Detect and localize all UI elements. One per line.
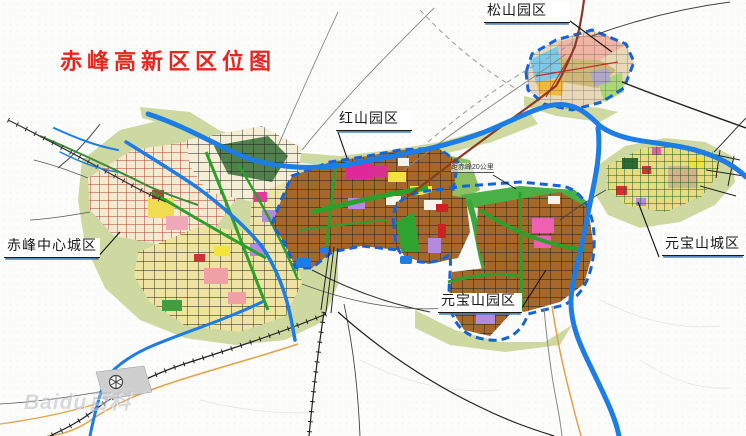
zone-songshan-park bbox=[526, 30, 634, 110]
label-yuanbaoshan-park: 元宝山园区 bbox=[438, 293, 522, 313]
label-center-city: 赤峰中心城区 bbox=[4, 238, 100, 258]
orange-road-se bbox=[552, 306, 581, 436]
label-distance-note: 距赤峰20公里 bbox=[451, 163, 494, 173]
label-yuanbaoshan-city: 元宝山城区 bbox=[662, 236, 744, 256]
label-songshan-park: 松山园区 bbox=[484, 3, 570, 23]
watermark: Baidu百科 bbox=[24, 386, 131, 416]
label-hongshan-park: 红山园区 bbox=[336, 111, 412, 131]
map-canvas: 赤峰高新区区位图 松山园区 红山园区 赤峰中心城区 元宝山园区 元宝山城区 距赤… bbox=[0, 0, 746, 436]
page-title: 赤峰高新区区位图 bbox=[60, 44, 276, 76]
